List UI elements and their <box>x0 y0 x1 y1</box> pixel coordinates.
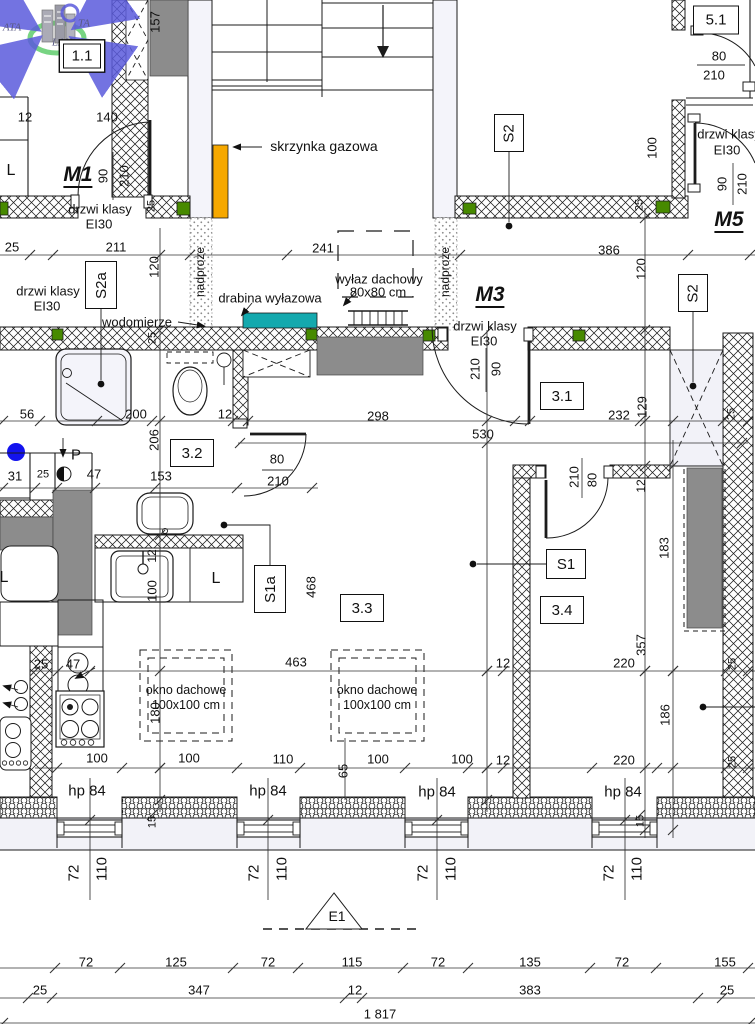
gray-chimney-horizontal <box>0 517 53 550</box>
bathtub <box>137 493 193 534</box>
gray-block-center <box>317 337 423 375</box>
left-appliance <box>0 717 31 770</box>
hatch-ladder-teal-block <box>243 313 317 328</box>
floor-plan-drawing <box>0 0 755 1024</box>
gray-block-top-left <box>150 0 188 76</box>
gas-box-skrzynka <box>213 145 228 218</box>
kitchen-sink <box>95 548 243 602</box>
stove-cooktop <box>56 691 104 747</box>
gray-chimney-vertical <box>53 490 92 635</box>
blue-marker-dot <box>7 443 25 461</box>
gray-block-right <box>687 468 722 628</box>
floor-plan-page: ATATALAN15712140LM19021025drzwi klasyEI3… <box>0 0 755 1024</box>
shower-tray <box>56 349 131 425</box>
